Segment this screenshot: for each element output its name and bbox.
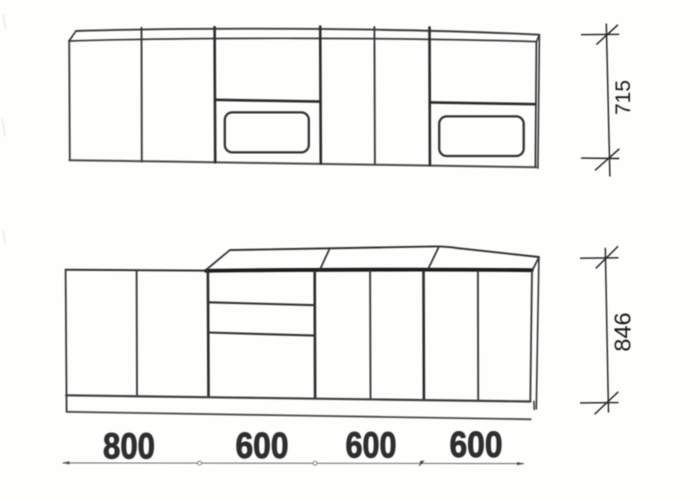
svg-text:600: 600 [236,425,289,466]
svg-text:600: 600 [450,424,503,465]
svg-text:715: 715 [612,80,635,115]
svg-text:600: 600 [346,424,397,465]
svg-text:846: 846 [609,312,635,351]
svg-text:800: 800 [103,425,155,466]
